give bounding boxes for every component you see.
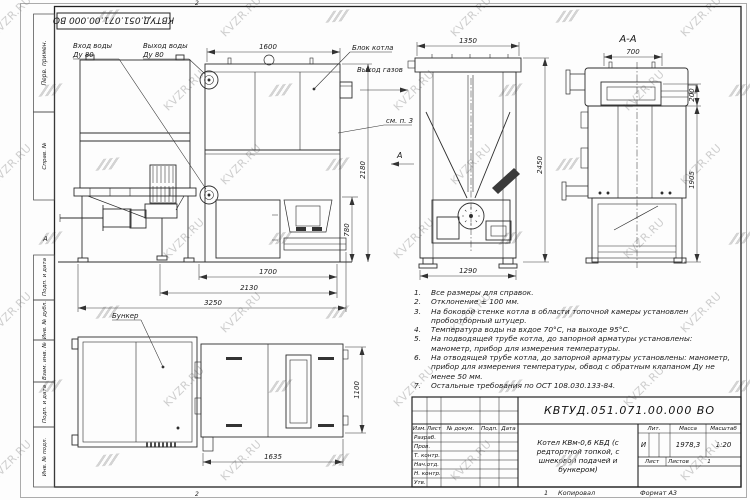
note-item: 1.Все размеры для справок.	[414, 288, 732, 297]
note-text: Все размеры для справок.	[431, 288, 732, 297]
title-block-grid	[412, 397, 741, 487]
notes-block: 1.Все размеры для справок. 2.Отклонение …	[414, 288, 732, 390]
note-item: 2.Отклонение ± 100 мм.	[414, 297, 732, 306]
note-number: 3.	[414, 307, 431, 326]
dim-780: 780	[343, 223, 351, 237]
copy-number: 1	[544, 489, 548, 497]
dim-1635: 1635	[264, 453, 282, 461]
note-text: На подводящей трубе котла, до запорной а…	[431, 334, 732, 353]
dim-1350: 1350	[459, 37, 477, 45]
bunker-label: Бункер	[112, 312, 139, 320]
section-title: А-А	[618, 34, 636, 45]
note-number: 2.	[414, 297, 431, 306]
section-arrow-letter: А	[396, 151, 402, 160]
note-item: 6.На отводящей трубе котла, до запорной …	[414, 353, 732, 381]
margin-label-invpodl: Инв. № подл.	[42, 437, 48, 476]
dim-1905: 1905	[688, 171, 696, 189]
note-text: Отклонение ± 100 мм.	[431, 297, 732, 306]
top-stamp-designation: КВТУД.051.071.00.000 ВО	[53, 15, 174, 25]
dim-1600: 1600	[259, 43, 277, 51]
sheet-frame	[21, 4, 747, 498]
note-number: 6.	[414, 353, 431, 381]
outlet-dn-label: Ду 80	[142, 51, 164, 59]
fold-mark-top: 2	[195, 0, 199, 7]
dim-200: 200	[688, 88, 696, 102]
front-view-dimensions	[417, 42, 549, 280]
outlet-label: Выход воды	[143, 42, 188, 50]
note-text: Остальные требования по ОСТ 108.030.133-…	[431, 381, 732, 390]
dim-2450: 2450	[536, 156, 544, 174]
front-view-dim-texts: 1350 1290 2450	[459, 37, 544, 275]
plan-view	[72, 337, 348, 451]
margin-label-perv: Перв. примен.	[41, 40, 48, 85]
fold-mark-bottom: 2	[195, 491, 199, 498]
note-text: Температура воды на вхдое 70°С, на выход…	[431, 325, 732, 334]
drawing-canvas: Перв. примен. Справ. № Подп. и дата Инв.…	[0, 0, 750, 500]
boiler-block-label: Блок котла	[352, 44, 393, 52]
margin-label-vzam: Взам. инв. №	[42, 342, 48, 380]
note-item: 7.Остальные требования по ОСТ 108.030.13…	[414, 381, 732, 390]
dim-1290: 1290	[459, 267, 477, 275]
drawing-sheet: KVZR.RUKVZR.RUKVZR.RUKVZR.RUKVZR.RUKVZR.…	[0, 0, 750, 500]
copied-label: Копировал	[558, 489, 595, 497]
side-view	[58, 55, 352, 262]
format-label: Формат А3	[640, 489, 677, 497]
margin-label-sprav: Справ. №	[42, 142, 48, 169]
sheet-frame-labels: Перв. примен. Справ. № Подп. и дата Инв.…	[41, 0, 199, 498]
inlet-label: Вход воды	[73, 42, 113, 50]
margin-label-invdubl: Инв. № дубл.	[42, 301, 48, 339]
dim-2180: 2180	[359, 161, 367, 179]
note-item: 4.Температура воды на вхдое 70°С, на вых…	[414, 325, 732, 334]
dim-3250: 3250	[204, 299, 222, 307]
dim-1100: 1100	[353, 381, 361, 399]
margin-label-podp2: Подп. и дата	[42, 384, 48, 423]
inlet-dn-label: Ду 80	[72, 51, 94, 59]
section-view-dimensions	[604, 53, 701, 262]
margin-label-podp1: Подп. и дата	[42, 257, 48, 296]
note-number: 1.	[414, 288, 431, 297]
see-note-label: см. п. 3	[386, 117, 413, 125]
note-text: На боковой стенке котла в области топочн…	[431, 307, 732, 326]
front-view	[408, 54, 521, 268]
dim-2130: 2130	[240, 284, 258, 292]
dim-1700: 1700	[259, 268, 277, 276]
note-number: 5.	[414, 334, 431, 353]
zone-marker: А	[42, 235, 48, 243]
note-number: 7.	[414, 381, 431, 390]
dim-700: 700	[626, 48, 640, 56]
side-view-dim-texts: 1600 2180 780 1700 2130 3250	[204, 43, 367, 307]
note-number: 4.	[414, 325, 431, 334]
note-item: 3.На боковой стенке котла в области топо…	[414, 307, 732, 326]
note-text: На отводящей трубе котла, до запорной ар…	[431, 353, 732, 381]
section-view	[562, 62, 696, 268]
plan-view-texts: Бункер 1635 1100	[112, 312, 361, 461]
gas-outlet-label: Выход газов	[357, 66, 403, 74]
side-view-dimensions	[78, 48, 372, 312]
note-item: 5.На подводящей трубе котла, до запорной…	[414, 334, 732, 353]
